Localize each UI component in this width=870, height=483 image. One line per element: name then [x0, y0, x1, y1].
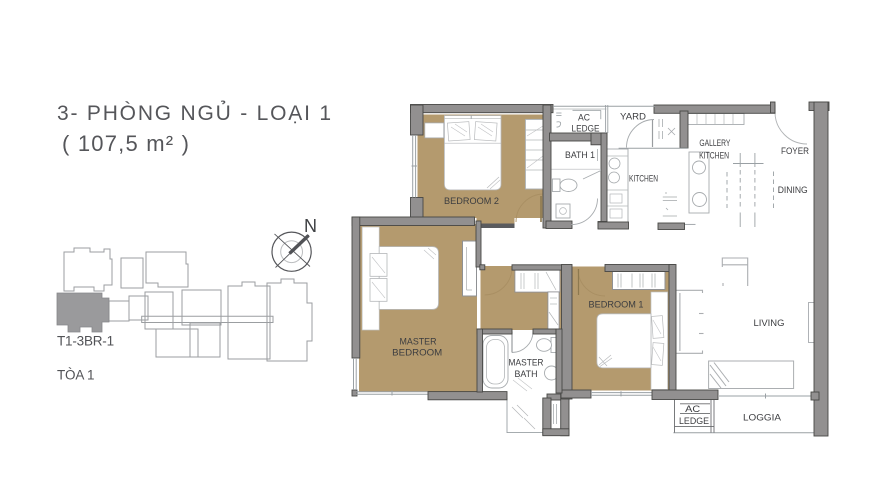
- svg-text:FOYER: FOYER: [781, 146, 809, 157]
- svg-text:MASTER: MASTER: [400, 337, 437, 348]
- svg-text:BEDROOM: BEDROOM: [392, 348, 442, 359]
- svg-text:KITCHEN: KITCHEN: [699, 150, 729, 161]
- svg-text:3- PHÒNG NGỦ - LOẠI 1: 3- PHÒNG NGỦ - LOẠI 1: [57, 101, 333, 125]
- svg-text:BATH 1: BATH 1: [565, 150, 595, 161]
- svg-text:BEDROOM 1: BEDROOM 1: [589, 299, 644, 310]
- svg-text:TÒA 1: TÒA 1: [57, 368, 94, 383]
- svg-text:BEDROOM 2: BEDROOM 2: [444, 196, 499, 207]
- svg-text:YARD: YARD: [620, 111, 646, 122]
- svg-text:DINING: DINING: [778, 185, 808, 196]
- svg-text:LOGGIA: LOGGIA: [743, 413, 782, 424]
- svg-text:( 107,5 m² ): ( 107,5 m² ): [62, 131, 190, 156]
- svg-text:MASTER: MASTER: [509, 358, 544, 369]
- svg-text:T1-3BR-1: T1-3BR-1: [57, 334, 114, 349]
- svg-text:GALLERY: GALLERY: [699, 138, 730, 149]
- svg-text:LEDGE: LEDGE: [572, 124, 600, 135]
- svg-text:AC: AC: [578, 113, 590, 124]
- svg-text:AC: AC: [685, 404, 700, 415]
- svg-text:LIVING: LIVING: [754, 318, 785, 329]
- svg-text:KITCHEN: KITCHEN: [629, 174, 658, 185]
- svg-text:BATH: BATH: [515, 369, 538, 380]
- svg-text:LEDGE: LEDGE: [679, 416, 709, 427]
- svg-text:N: N: [304, 216, 317, 236]
